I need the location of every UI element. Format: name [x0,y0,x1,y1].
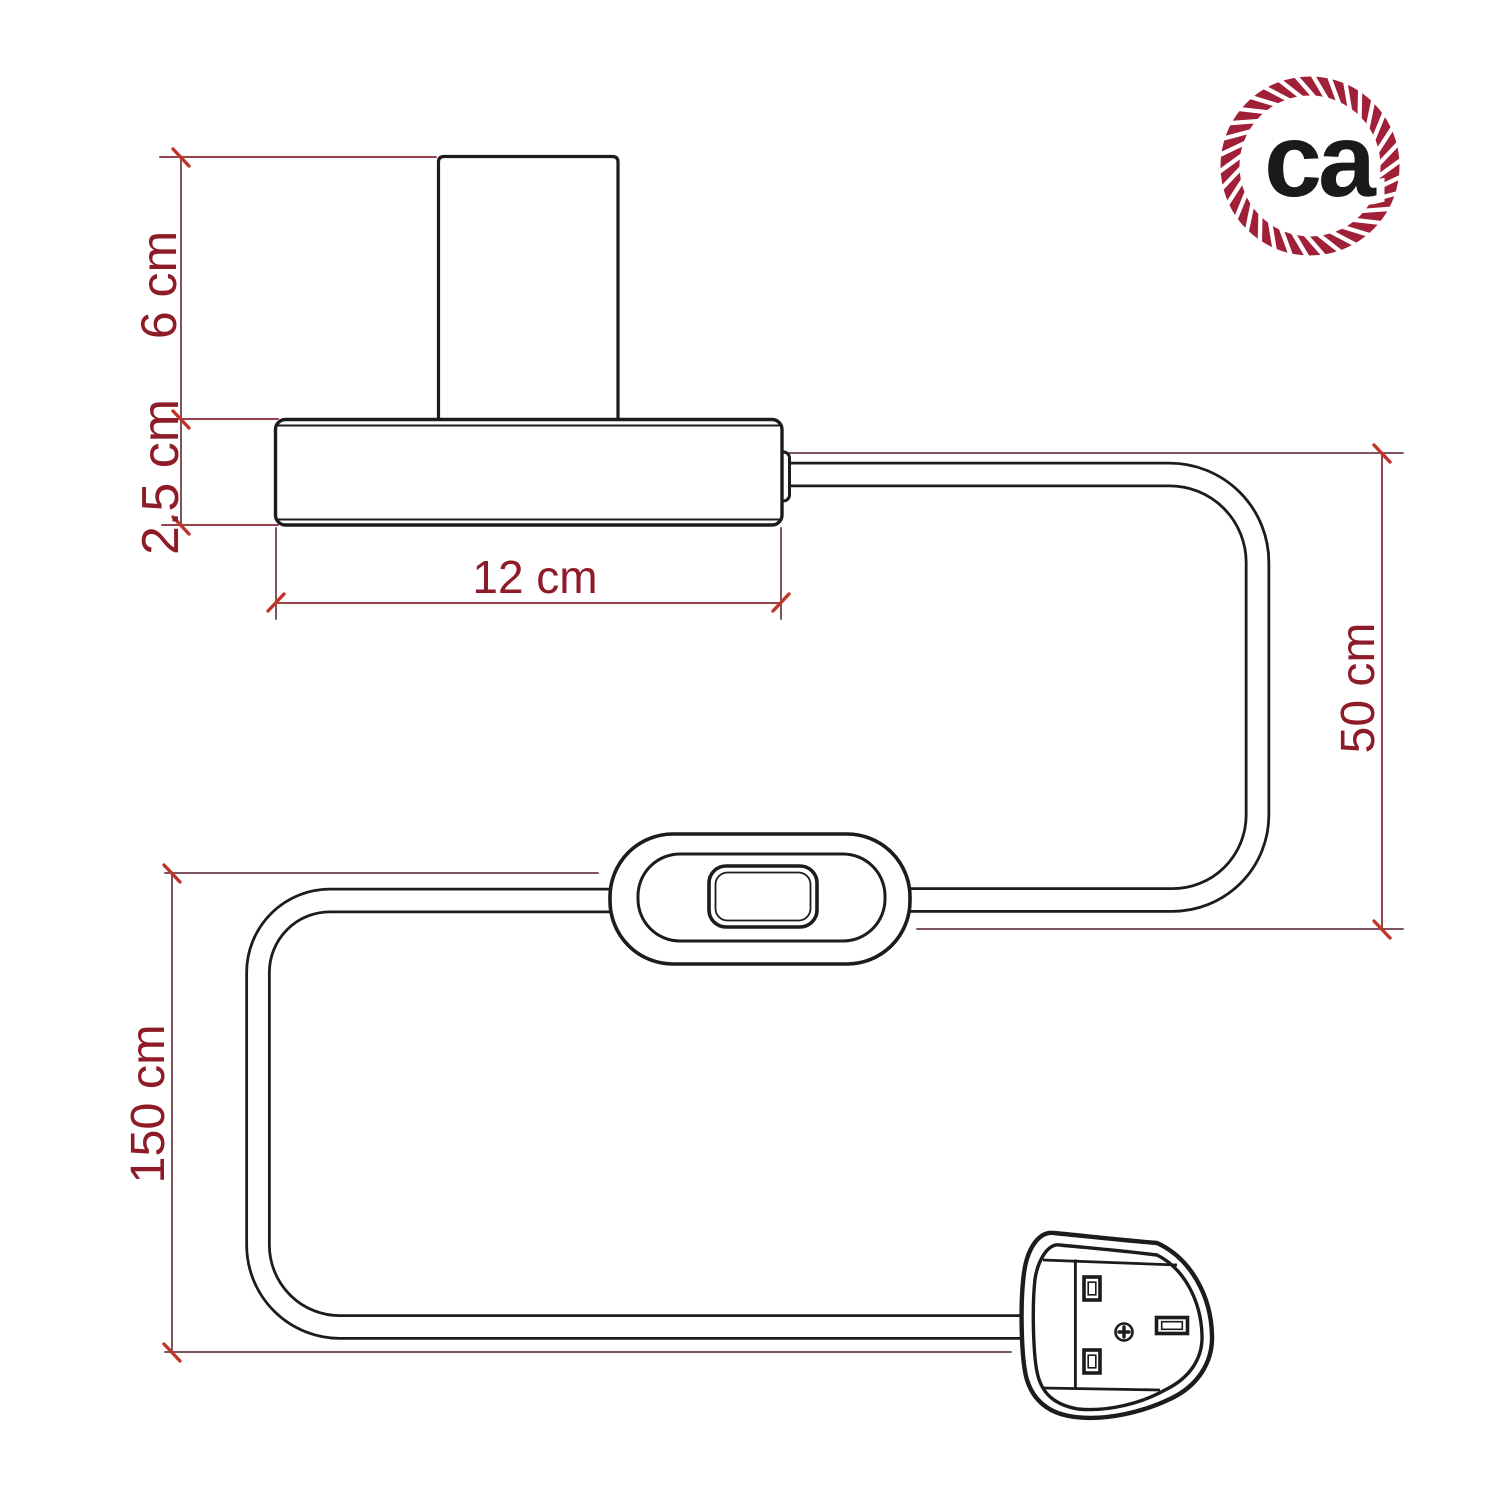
svg-text:50 cm: 50 cm [1332,623,1385,754]
svg-text:6 cm: 6 cm [131,231,187,339]
svg-text:ca: ca [1264,103,1377,219]
svg-text:150 cm: 150 cm [121,1024,175,1183]
svg-text:12 cm: 12 cm [472,551,597,603]
svg-text:2.5 cm: 2.5 cm [132,399,190,555]
